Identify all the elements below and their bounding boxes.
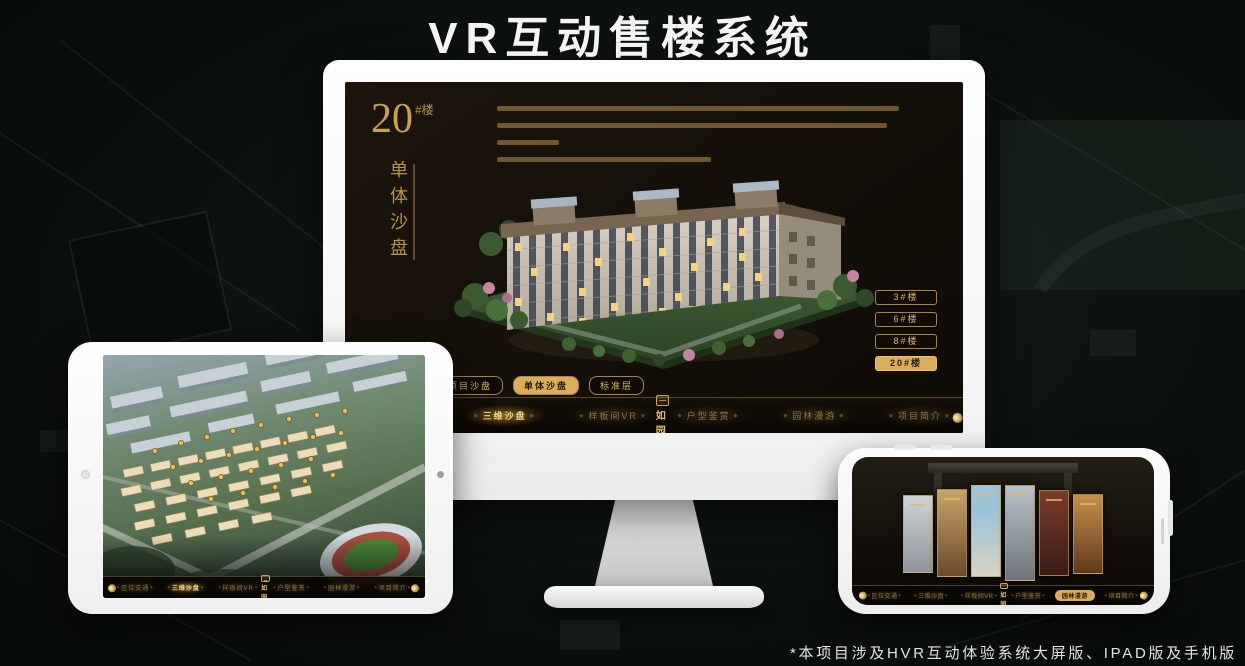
nav-item[interactable]: 区位交通	[865, 590, 905, 601]
footnote: *本项目涉及HVR互动体验系统大屏版、IPAD版及手机版	[790, 642, 1237, 663]
nav-item[interactable]: 园林漫游	[774, 405, 854, 426]
seal-icon	[1000, 583, 1008, 589]
tablet-ui-overlay: 项目沙盘 单体沙盘 标准层	[103, 576, 425, 598]
building-model-render	[449, 148, 879, 373]
logo-label: 如园	[1000, 590, 1008, 605]
scroll-icon[interactable]	[413, 584, 419, 591]
logo-label: 如园	[656, 407, 669, 434]
nav-items-left: 区位交通 三维沙盘 样板间VR	[114, 581, 261, 594]
floor-button-label: 20#楼	[890, 358, 922, 368]
building-title: 20#楼	[371, 98, 434, 140]
sub-tab[interactable]: 单体沙盘	[513, 376, 579, 395]
nav-item-label: 区位交通	[121, 586, 149, 592]
page-title: VR互动售楼系统	[0, 2, 1245, 66]
description-line	[497, 123, 887, 128]
nav-item-label: 户型鉴赏	[687, 411, 731, 421]
sub-tab-label: 标准层	[600, 381, 633, 391]
ruyuan-logo[interactable]: 如园	[656, 395, 669, 434]
scroll-icon[interactable]	[1140, 592, 1147, 600]
ruyuan-logo[interactable]: 如园	[1000, 583, 1008, 605]
nav-item-label: 项目简介	[1109, 594, 1135, 600]
phone-screen: 区位交通 三维沙盘 样板间VR 如园 户型鉴赏 园林漫游	[852, 457, 1154, 605]
nav-item-label: 区位交通	[871, 594, 897, 600]
nav-item[interactable]: 样板间VR	[570, 405, 655, 426]
nav-item-label: 户型鉴赏	[277, 586, 305, 592]
nav-item[interactable]: 项目简介	[371, 581, 414, 594]
scroll-icon[interactable]	[957, 412, 962, 418]
phone-power-button[interactable]	[1168, 500, 1173, 536]
nav-item-label: 样板间VR	[965, 594, 994, 600]
floor-selector: 3#楼 6#楼 8#楼 20#楼	[875, 290, 937, 378]
nav-items-right: 户型鉴赏 园林漫游 项目简介	[1008, 590, 1141, 601]
nav-item[interactable]: 区位交通	[114, 581, 157, 594]
floor-button[interactable]: 3#楼	[875, 290, 937, 305]
nav-item-label: 三维沙盘	[172, 586, 200, 592]
building-unit: #楼	[415, 103, 434, 117]
page-canvas: VR互动售楼系统 20#楼 单体沙盘	[0, 0, 1245, 666]
ruyuan-logo[interactable]: 如园	[261, 575, 270, 599]
sub-tab[interactable]: 标准层	[589, 376, 644, 395]
floor-button[interactable]: 8#楼	[875, 334, 937, 349]
logo-label: 如园	[261, 583, 270, 599]
phone-volume-button[interactable]	[930, 445, 952, 450]
gallery-panel[interactable]	[1073, 494, 1103, 574]
seal-icon	[261, 575, 270, 582]
building-subtitle: 单体沙盘	[385, 160, 411, 290]
description-line	[497, 140, 559, 145]
vr-scene-gallery	[903, 485, 1103, 581]
floor-button-label: 6#楼	[893, 314, 918, 324]
nav-item-label: 三维沙盘	[483, 411, 527, 421]
nav-item[interactable]: 样板间VR	[958, 590, 1000, 601]
nav-item-label: 园林漫游	[1062, 594, 1088, 600]
nav-item[interactable]: 户型鉴赏	[1008, 590, 1048, 601]
nav-item-label: 项目简介	[379, 586, 407, 592]
floor-button[interactable]: 20#楼	[875, 356, 937, 371]
nav-items-right: 户型鉴赏 园林漫游 项目简介	[669, 405, 960, 426]
nav-item[interactable]: 三维沙盘	[165, 581, 208, 594]
tablet-screen: 项目沙盘 单体沙盘 标准层	[103, 355, 425, 598]
phone-speaker-icon	[1161, 518, 1164, 544]
tablet-camera-icon	[81, 470, 90, 479]
sub-tab-label: 项目沙盘	[448, 381, 492, 391]
floor-button-label: 8#楼	[893, 336, 918, 346]
phone-device: 区位交通 三维沙盘 样板间VR 如园 户型鉴赏 园林漫游	[838, 448, 1170, 614]
nav-items-right: 户型鉴赏 园林漫游 项目简介	[270, 581, 414, 594]
tablet-home-button[interactable]	[437, 471, 444, 478]
nav-item[interactable]: 园林漫游	[1055, 590, 1095, 601]
gallery-panel[interactable]	[903, 495, 933, 573]
building-number: 20	[371, 96, 413, 142]
desktop-sub-tabs: 项目沙盘 单体沙盘 标准层	[437, 376, 644, 395]
nav-item-label: 三维沙盘	[918, 594, 944, 600]
nav-item-label: 园林漫游	[328, 586, 356, 592]
nav-item-label: 样板间VR	[223, 586, 254, 592]
nav-item-label: 样板间VR	[588, 411, 638, 421]
sub-tab-label: 单体沙盘	[524, 381, 568, 391]
nav-item-label: 项目简介	[898, 411, 942, 421]
description-line	[497, 106, 899, 111]
nav-item-label: 园林漫游	[792, 411, 836, 421]
floor-button-label: 3#楼	[893, 292, 918, 302]
courtyard-gate-render	[928, 463, 1078, 473]
gallery-panel[interactable]	[971, 485, 1001, 577]
tablet-bottom-nav: 区位交通 三维沙盘 样板间VR 如园 户型鉴赏	[103, 576, 425, 598]
gallery-panel[interactable]	[937, 489, 967, 577]
nav-item[interactable]: 户型鉴赏	[669, 405, 749, 426]
nav-item[interactable]: 项目简介	[880, 405, 960, 426]
nav-item[interactable]: 项目简介	[1102, 590, 1142, 601]
subtitle-divider	[413, 164, 415, 260]
seal-icon	[656, 395, 669, 406]
nav-item[interactable]: 样板间VR	[215, 581, 261, 594]
phone-bottom-nav: 区位交通 三维沙盘 样板间VR 如园 户型鉴赏 园林漫游	[852, 585, 1154, 605]
floor-button[interactable]: 6#楼	[875, 312, 937, 327]
phone-volume-button[interactable]	[894, 445, 916, 450]
nav-item[interactable]: 三维沙盘	[911, 590, 951, 601]
gallery-panel[interactable]	[1005, 485, 1035, 581]
nav-item[interactable]: 户型鉴赏	[270, 581, 313, 594]
monitor-stand-base	[544, 586, 764, 608]
tablet-device: 项目沙盘 单体沙盘 标准层	[68, 342, 453, 614]
nav-item-label: 户型鉴赏	[1015, 594, 1041, 600]
nav-item[interactable]: 三维沙盘	[465, 405, 545, 426]
gallery-panel[interactable]	[1039, 490, 1069, 576]
nav-items-left: 区位交通 三维沙盘 样板间VR	[865, 590, 1001, 601]
nav-item[interactable]: 园林漫游	[321, 581, 364, 594]
masterplan-aerial-render	[103, 355, 425, 598]
